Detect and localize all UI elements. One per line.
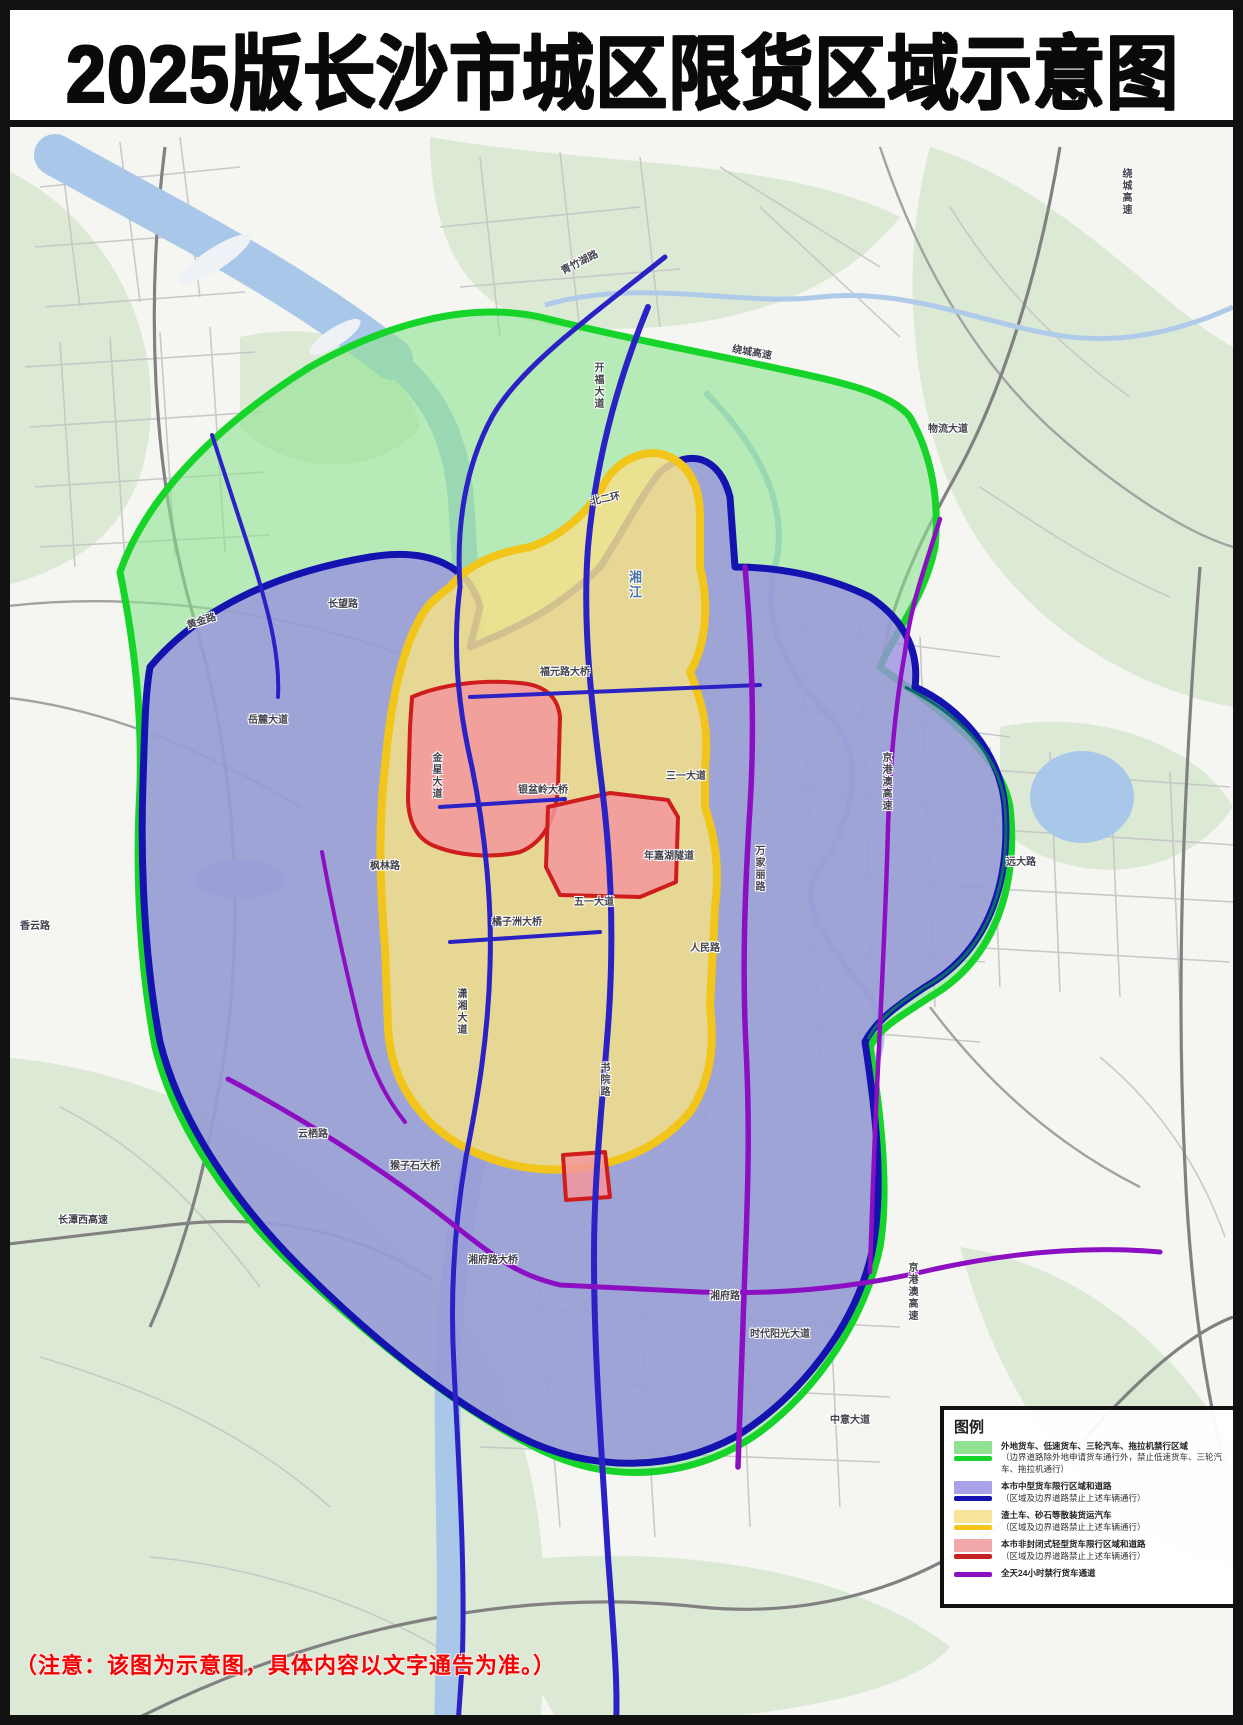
legend-swatch-green — [954, 1441, 992, 1461]
legend-text: 全天24小时禁行货车通道 — [1001, 1568, 1095, 1579]
legend-row-red: 本市非封闭式轻型货车限行区域和道路 （区域及边界道路禁止上述车辆通行） — [954, 1539, 1227, 1562]
legend-subtext: （边界道路除外地申请货车通行外，禁止低速货车、三轮汽车、拖拉机通行） — [1001, 1452, 1227, 1475]
purple-line-swatch — [954, 1496, 992, 1501]
legend-box: 图例 外地货车、低速货车、三轮汽车、拖拉机禁行区域 （边界道路除外地申请货车通行… — [940, 1406, 1239, 1608]
route-line-swatch — [954, 1572, 992, 1577]
legend-text: 本市中型货车限行区域和道路 — [1001, 1481, 1146, 1492]
legend-text: 外地货车、低速货车、三轮汽车、拖拉机禁行区域 — [1001, 1441, 1227, 1452]
legend-text: 渣土车、砂石等散装货运汽车 — [1001, 1510, 1146, 1521]
legend-swatch-red — [954, 1539, 992, 1559]
legend-swatch-route — [954, 1570, 992, 1577]
green-line-swatch — [954, 1456, 992, 1461]
legend-swatch-purple — [954, 1481, 992, 1501]
legend-row-yellow: 渣土车、砂石等散装货运汽车 （区域及边界道路禁止上述车辆通行） — [954, 1510, 1227, 1533]
green-area-swatch — [954, 1441, 992, 1454]
page-title: 2025版长沙市城区限货区域示意图 — [65, 6, 1178, 124]
map-page: 2025版长沙市城区限货区域示意图 — [0, 0, 1243, 1725]
legend-text: 本市非封闭式轻型货车限行区域和道路 — [1001, 1539, 1146, 1550]
legend-subtext: （区域及边界道路禁止上述车辆通行） — [1001, 1493, 1146, 1504]
yellow-line-swatch — [954, 1525, 992, 1530]
legend-row-purple-route: 全天24小时禁行货车通道 — [954, 1568, 1227, 1579]
purple-area-swatch — [954, 1481, 992, 1494]
legend-subtext: （区域及边界道路禁止上述车辆通行） — [1001, 1522, 1146, 1533]
legend-swatch-yellow — [954, 1510, 992, 1530]
legend-subtext: （区域及边界道路禁止上述车辆通行） — [1001, 1551, 1146, 1562]
legend-row-green: 外地货车、低速货车、三轮汽车、拖拉机禁行区域 （边界道路除外地申请货车通行外，禁… — [954, 1441, 1227, 1475]
title-band: 2025版长沙市城区限货区域示意图 — [10, 10, 1233, 127]
legend-title: 图例 — [954, 1416, 1227, 1437]
songya-lake — [1030, 751, 1134, 843]
red-area-swatch — [954, 1539, 992, 1552]
map-note: （注意：该图为示意图，具体内容以文字通告为准。） — [15, 1648, 556, 1680]
legend-row-purple: 本市中型货车限行区域和道路 （区域及边界道路禁止上述车辆通行） — [954, 1481, 1227, 1504]
red-zone-south — [563, 1152, 610, 1200]
red-line-swatch — [954, 1554, 992, 1559]
yellow-area-swatch — [954, 1510, 992, 1523]
